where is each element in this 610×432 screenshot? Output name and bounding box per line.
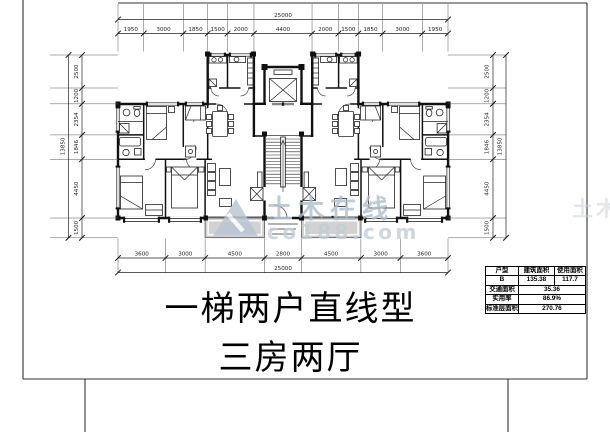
svg-text:2500: 2500: [74, 64, 80, 79]
svg-text:1500: 1500: [211, 27, 226, 33]
svg-text:1500: 1500: [74, 220, 80, 235]
row-label: 实用率: [486, 295, 519, 304]
svg-text:1850: 1850: [363, 27, 378, 33]
svg-text:3000: 3000: [156, 27, 171, 33]
svg-text:1950: 1950: [124, 27, 139, 33]
drawing-sheet: 2500019503000185015002000440020001500185…: [0, 0, 610, 432]
col-header: 使用面积: [554, 267, 585, 276]
watermark: 土木在线 co188.com 土木在线: [213, 195, 610, 244]
table-row: B 135.38 117.7: [486, 276, 586, 285]
svg-text:2800: 2800: [276, 252, 291, 258]
svg-text:3600: 3600: [417, 252, 432, 258]
elevator-shaft: [253, 64, 314, 106]
svg-text:1500: 1500: [341, 27, 356, 33]
svg-text:25000: 25000: [274, 13, 292, 19]
row-value: 86.9%: [518, 295, 585, 304]
svg-text:13850: 13850: [498, 137, 504, 155]
svg-text:1200: 1200: [74, 88, 80, 103]
svg-text:2354: 2354: [74, 112, 80, 127]
col-header: 建筑面积: [518, 267, 554, 276]
unit-type-cell: B: [486, 276, 519, 285]
usable-area-cell: 117.7: [554, 276, 585, 285]
svg-text:25000: 25000: [274, 266, 292, 272]
svg-text:4400: 4400: [276, 27, 291, 33]
svg-text:1850: 1850: [188, 27, 203, 33]
table-row: 标准层面积 270.76: [486, 304, 586, 313]
row-label: 交通面积: [486, 285, 519, 294]
svg-text:3600: 3600: [135, 252, 150, 258]
svg-text:1500: 1500: [485, 220, 491, 235]
row-value: 270.76: [518, 304, 585, 313]
row-value: 35.36: [518, 285, 585, 294]
drawing-title-line1: 一梯两户直线型: [118, 281, 463, 330]
table-row: 实用率 86.9%: [486, 295, 586, 304]
svg-text:3000: 3000: [374, 252, 389, 258]
built-area-cell: 135.38: [518, 276, 554, 285]
svg-text:4500: 4500: [228, 252, 243, 258]
col-header: 户型: [486, 267, 519, 276]
table-row: 户型 建筑面积 使用面积: [486, 267, 586, 276]
row-label: 标准层面积: [486, 304, 519, 313]
drawing-title-line2: 三房两厅: [118, 330, 463, 379]
svg-text:2500: 2500: [485, 64, 491, 79]
svg-text:1846: 1846: [74, 140, 80, 155]
svg-text:1200: 1200: [485, 88, 491, 103]
svg-text:2354: 2354: [485, 112, 491, 127]
lobby-walls: [253, 104, 314, 137]
area-stats-table: 户型 建筑面积 使用面积 B 135.38 117.7 交通面积 35.36 实…: [485, 266, 586, 314]
watermark-domain: co188.com: [267, 220, 420, 244]
svg-text:1950: 1950: [428, 27, 443, 33]
svg-text:4500: 4500: [324, 252, 339, 258]
svg-text:4450: 4450: [74, 181, 80, 196]
svg-text:1846: 1846: [485, 140, 491, 155]
svg-text:3000: 3000: [178, 252, 193, 258]
svg-text:13850: 13850: [61, 137, 67, 155]
watermark-brand-partial: 土木在线: [572, 197, 610, 221]
svg-text:2000: 2000: [318, 27, 333, 33]
svg-text:4450: 4450: [485, 181, 491, 196]
svg-text:2000: 2000: [234, 27, 249, 33]
table-row: 交通面积 35.36: [486, 285, 586, 294]
svg-text:3000: 3000: [395, 27, 410, 33]
